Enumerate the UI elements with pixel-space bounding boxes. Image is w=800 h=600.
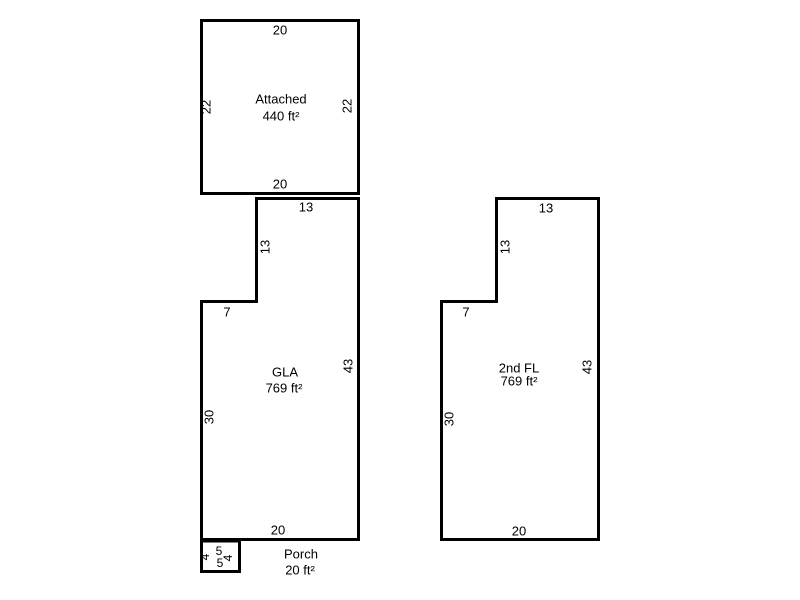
dim-second-floor-right: 43 [581, 360, 594, 374]
dim-gla-right: 43 [342, 359, 355, 373]
second-floor-area-label: 769 ft² [501, 375, 538, 388]
dim-attached-left: 22 [200, 100, 213, 114]
gla-name-label: GLA [272, 366, 298, 379]
dim-porch-bottom: 5 [217, 557, 224, 569]
dim-second-floor-lower-left: 30 [443, 412, 456, 426]
sketch-outlines [0, 0, 800, 600]
porch-area-label: 20 ft² [285, 564, 315, 577]
dim-second-floor-step: 7 [462, 306, 469, 319]
dim-gla-lower-left: 30 [203, 410, 216, 424]
dim-attached-bottom: 20 [273, 178, 287, 191]
attached-outline [202, 21, 359, 194]
dim-porch-right: 4 [222, 555, 234, 562]
dim-second-floor-top: 13 [539, 202, 553, 215]
dim-gla-top: 13 [299, 201, 313, 214]
dim-second-floor-upper-left: 13 [499, 240, 512, 254]
attached-name-label: Attached [255, 93, 306, 106]
dim-gla-step: 7 [223, 306, 230, 319]
gla-area-label: 769 ft² [266, 382, 303, 395]
dim-attached-right: 22 [341, 99, 354, 113]
dim-porch-left: 4 [199, 554, 211, 561]
dim-attached-top: 20 [273, 24, 287, 37]
dim-second-floor-bottom: 20 [512, 525, 526, 538]
dim-gla-upper-left: 13 [259, 240, 272, 254]
attached-area-label: 440 ft² [263, 110, 300, 123]
dim-gla-bottom: 20 [271, 524, 285, 537]
porch-name-label: Porch [284, 548, 318, 561]
floorplan-sketch: 20 22 22 20 Attached 440 ft² 13 13 7 30 … [0, 0, 800, 600]
